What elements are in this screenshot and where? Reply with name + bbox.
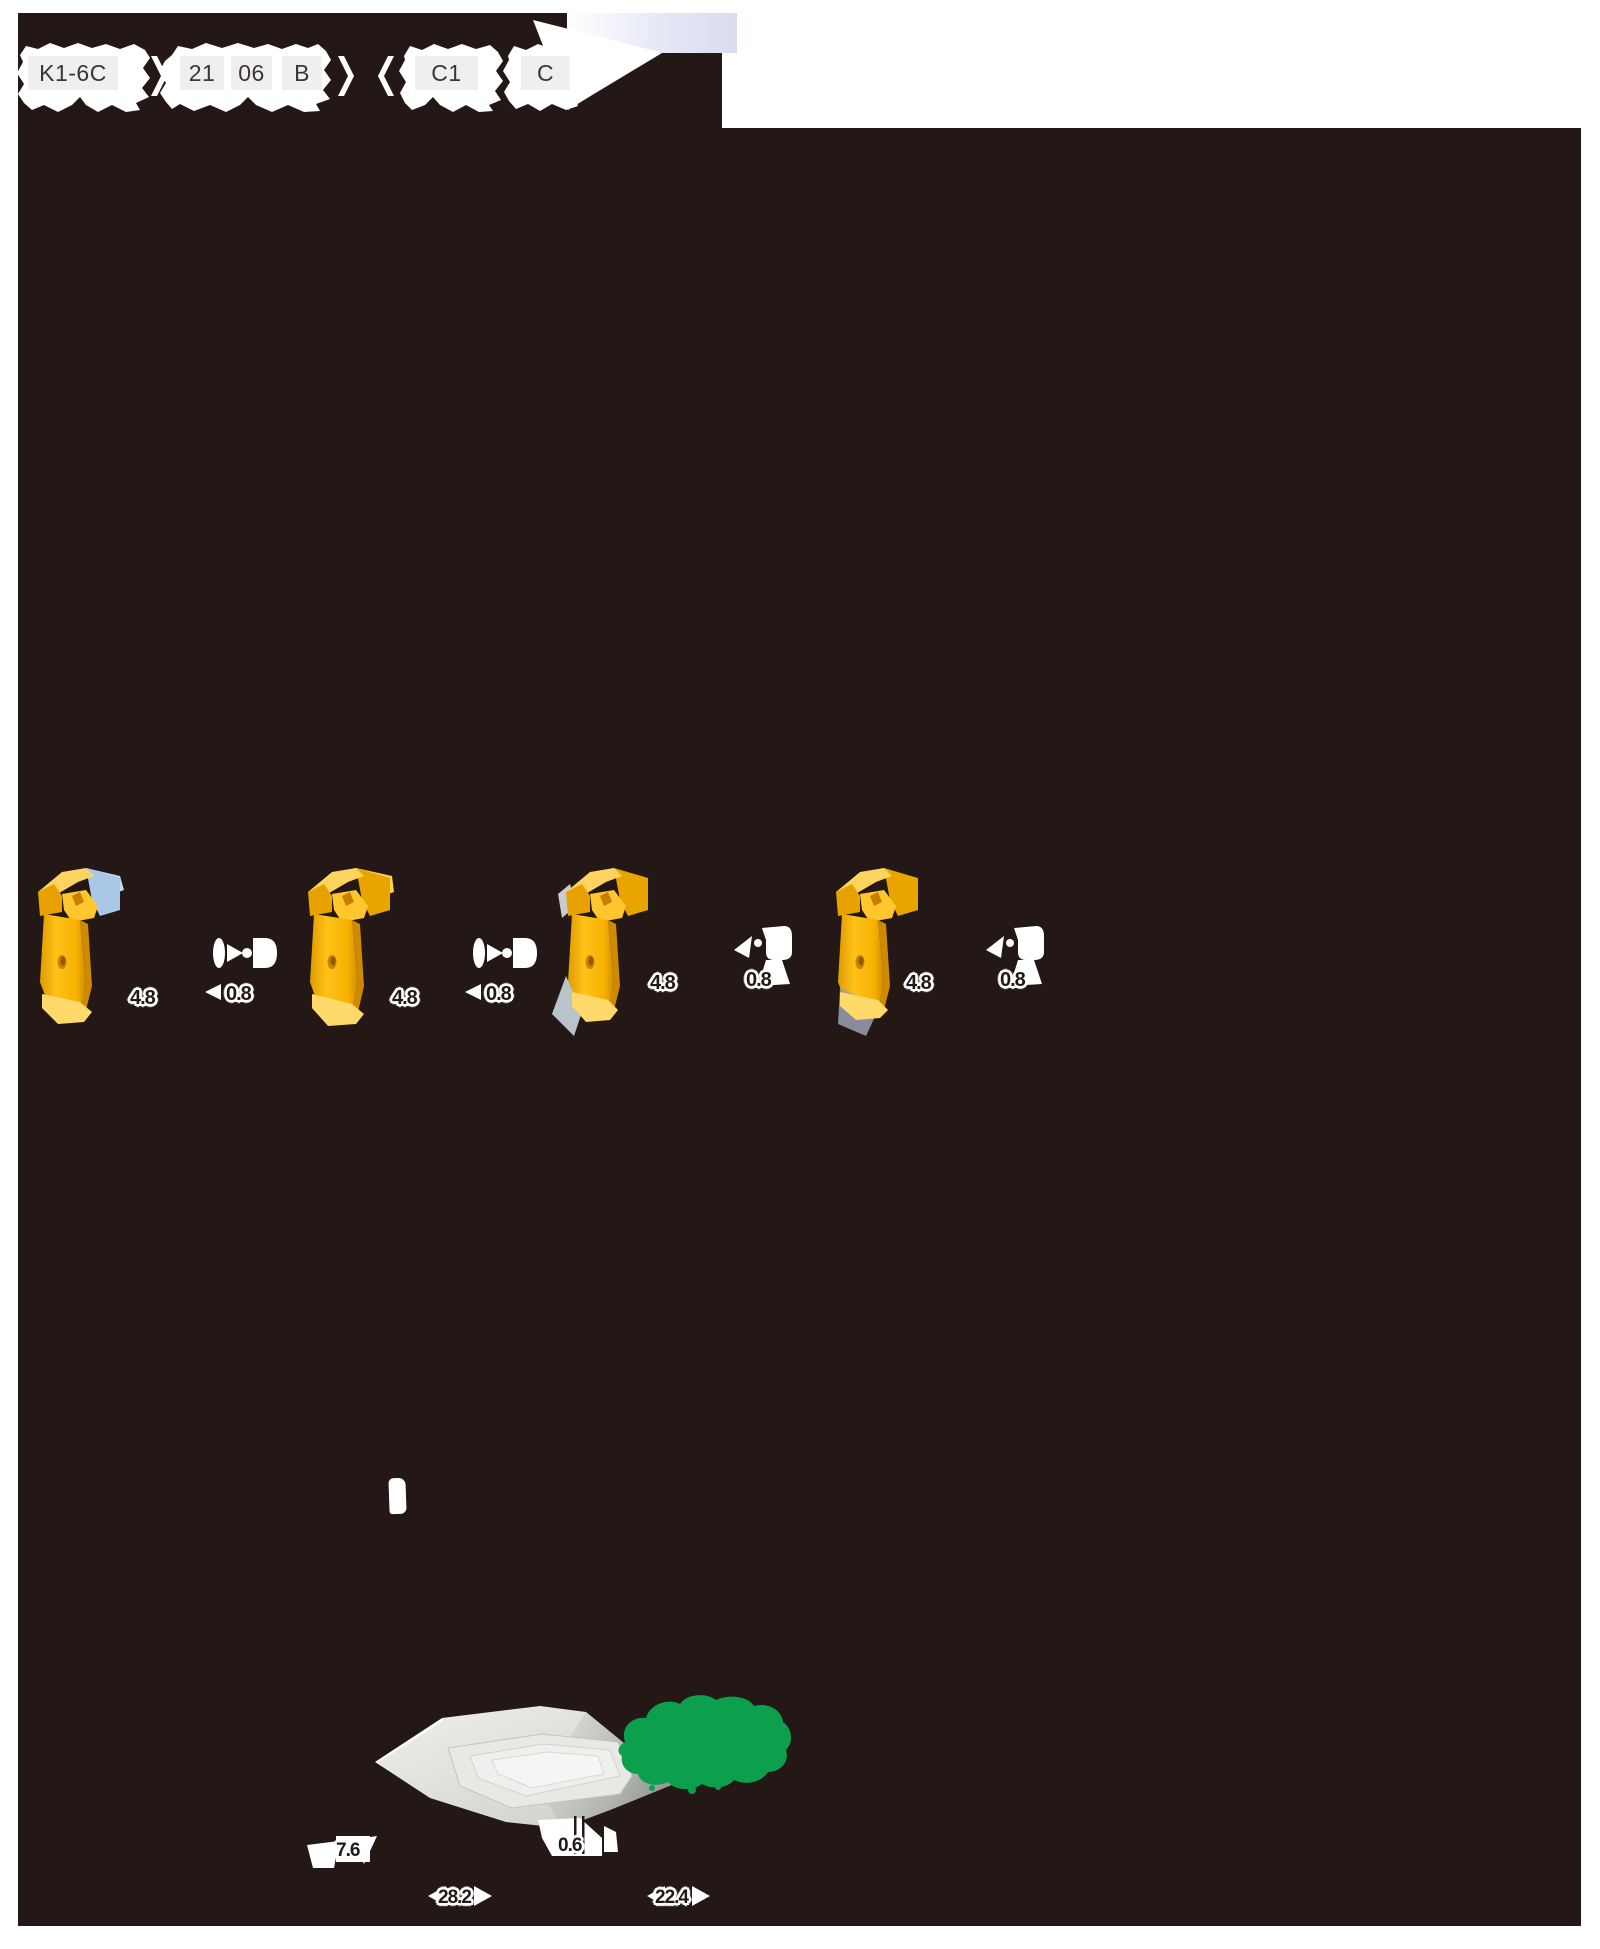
logo-green-blob bbox=[649, 1785, 655, 1791]
code-box-size1: 21 bbox=[180, 56, 224, 90]
code-box-style: B bbox=[282, 56, 322, 90]
arrow-left-icon bbox=[465, 984, 481, 1000]
insert-render-1 bbox=[38, 868, 124, 1024]
arrow-left-icon bbox=[205, 984, 221, 1000]
bottom-render bbox=[280, 1690, 820, 1940]
dim-width-2: 4.8 bbox=[392, 988, 417, 1008]
insert-render-4 bbox=[836, 868, 918, 1036]
dim-knockout-trapezoid bbox=[307, 1841, 339, 1868]
arrow-right-icon bbox=[227, 944, 243, 962]
insert-renders bbox=[0, 860, 1100, 1050]
dim-width-back: 22.4 bbox=[655, 1888, 688, 1907]
header-wedge bbox=[576, 46, 648, 100]
logo-green-blob bbox=[688, 1786, 696, 1794]
dim-width-1: 4.8 bbox=[130, 988, 155, 1008]
dim-corner-3: 0.8 bbox=[746, 970, 771, 990]
code-box-model: K1-6C bbox=[28, 56, 118, 90]
dim-width-3: 4.8 bbox=[650, 973, 675, 993]
knockout-chevron bbox=[338, 56, 354, 96]
logo-green-blob bbox=[715, 1784, 721, 1790]
insert-render-2 bbox=[308, 868, 394, 1026]
arrow-right-icon bbox=[692, 1886, 710, 1906]
insert-render-3 bbox=[552, 868, 648, 1036]
arrow-left-icon bbox=[734, 936, 752, 958]
dim-corner-1: 0.8 bbox=[226, 984, 251, 1004]
header-white-area bbox=[722, 0, 1600, 128]
arrow-left-icon bbox=[986, 936, 1004, 958]
dim-corner-4: 0.8 bbox=[1000, 970, 1025, 990]
arrow-right-icon bbox=[474, 1886, 492, 1906]
catalog-page: K1-6C 21 06 B C1 C bbox=[0, 0, 1600, 1949]
knockout-chevron bbox=[378, 56, 394, 96]
arrow-right-icon bbox=[487, 944, 503, 962]
dim-width-4: 4.8 bbox=[906, 973, 931, 993]
dim-width-front: 28.2 bbox=[438, 1888, 471, 1907]
code-box-size2: 06 bbox=[231, 56, 272, 90]
dim-land: 0.6 bbox=[558, 1836, 581, 1855]
dim-height: 7.6 bbox=[336, 1841, 359, 1860]
stray-knockout bbox=[388, 1478, 406, 1515]
dim-corner-2: 0.8 bbox=[486, 984, 511, 1004]
code-box-corner: C1 bbox=[415, 56, 478, 90]
logo-green-blob bbox=[618, 1695, 791, 1789]
code-box-grade: C bbox=[521, 56, 570, 90]
